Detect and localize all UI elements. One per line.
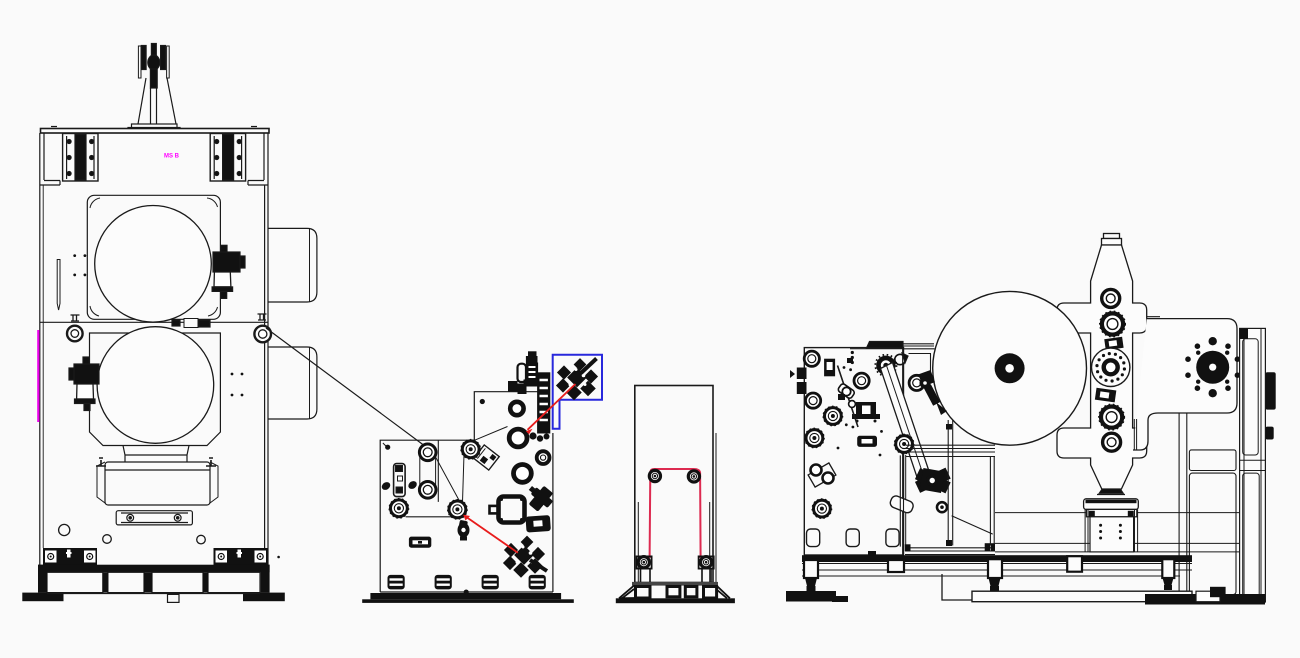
svg-text:MS B: MS B xyxy=(164,154,180,160)
